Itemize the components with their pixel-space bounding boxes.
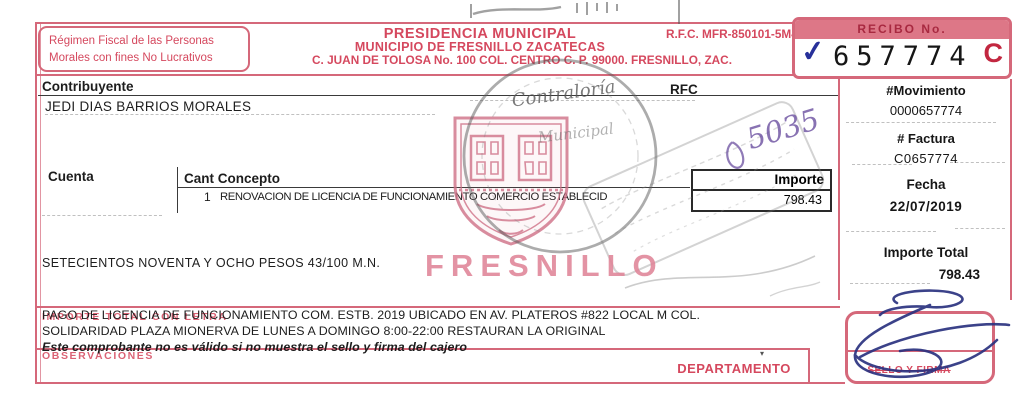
scan-line bbox=[955, 228, 1005, 229]
movement-label: #Movimiento bbox=[840, 83, 1012, 98]
amount-in-words: SETECIENTOS NOVENTA Y OCHO PESOS 43/100 … bbox=[42, 256, 380, 270]
line-item-qty: 1 bbox=[204, 190, 211, 204]
scan-line bbox=[45, 114, 435, 115]
top-edge-stamp-marks bbox=[465, 0, 695, 26]
signature-scribble bbox=[835, 285, 1023, 393]
date-value: 22/07/2019 bbox=[840, 199, 1012, 214]
qty-concept-label: Cant Concepto bbox=[184, 171, 280, 186]
department-label: DEPARTAMENTO bbox=[660, 361, 808, 376]
receipt-number-label: RECIBO No. bbox=[795, 20, 1009, 39]
account-label: Cuenta bbox=[48, 169, 94, 184]
receipt-series: C bbox=[984, 38, 1004, 69]
down-arrow-icon: ▾ bbox=[760, 349, 764, 358]
scan-line bbox=[846, 122, 996, 123]
pencil-squiggle bbox=[620, 244, 830, 306]
checkmark-icon: ✓ bbox=[799, 33, 827, 70]
total-value: 798.43 bbox=[840, 267, 980, 282]
scan-line bbox=[850, 283, 930, 284]
receipt-number-box: RECIBO No. ✓ 657774 C bbox=[792, 17, 1012, 79]
handwritten-loop-mark bbox=[722, 140, 748, 172]
municipal-receipt-document: Régimen Fiscal de las Personas Morales c… bbox=[0, 0, 1024, 406]
department-box-divider bbox=[808, 348, 810, 384]
taxpayer-name: JEDI DIAS BARRIOS MORALES bbox=[45, 99, 251, 114]
movement-value: 0000657774 bbox=[840, 103, 1012, 118]
total-label: Importe Total bbox=[840, 245, 1012, 260]
fiscal-regime-line2: Morales con fines No Lucrativos bbox=[49, 50, 239, 67]
header-underline bbox=[37, 74, 839, 76]
scan-line bbox=[846, 231, 936, 232]
footer-line2: SOLIDARIDAD PLAZA MIONERVA DE LUNES A DO… bbox=[42, 324, 606, 338]
left-border bbox=[35, 22, 37, 384]
left-border-inner bbox=[40, 24, 41, 382]
receipt-number-value: 657774 bbox=[833, 41, 973, 72]
concept-column-vline bbox=[177, 167, 178, 213]
invoice-label: # Factura bbox=[840, 131, 1012, 146]
date-label: Fecha bbox=[840, 177, 1012, 192]
header-rfc: R.F.C. MFR-850101-5M4 bbox=[666, 27, 798, 41]
invoice-value: C0657774 bbox=[840, 151, 1012, 166]
bottom-border bbox=[37, 382, 845, 384]
taxpayer-label: Contribuyente bbox=[42, 79, 134, 94]
fiscal-regime-box: Régimen Fiscal de las Personas Morales c… bbox=[38, 26, 250, 72]
fiscal-regime-line1: Régimen Fiscal de las Personas bbox=[49, 33, 239, 50]
scan-line bbox=[42, 215, 162, 216]
footer-notice: Este comprobante no es válido si no mues… bbox=[42, 340, 467, 354]
footer-line1: PAGO DE LICENCIA DE FUNCIONAMIENTO COM. … bbox=[42, 308, 700, 322]
